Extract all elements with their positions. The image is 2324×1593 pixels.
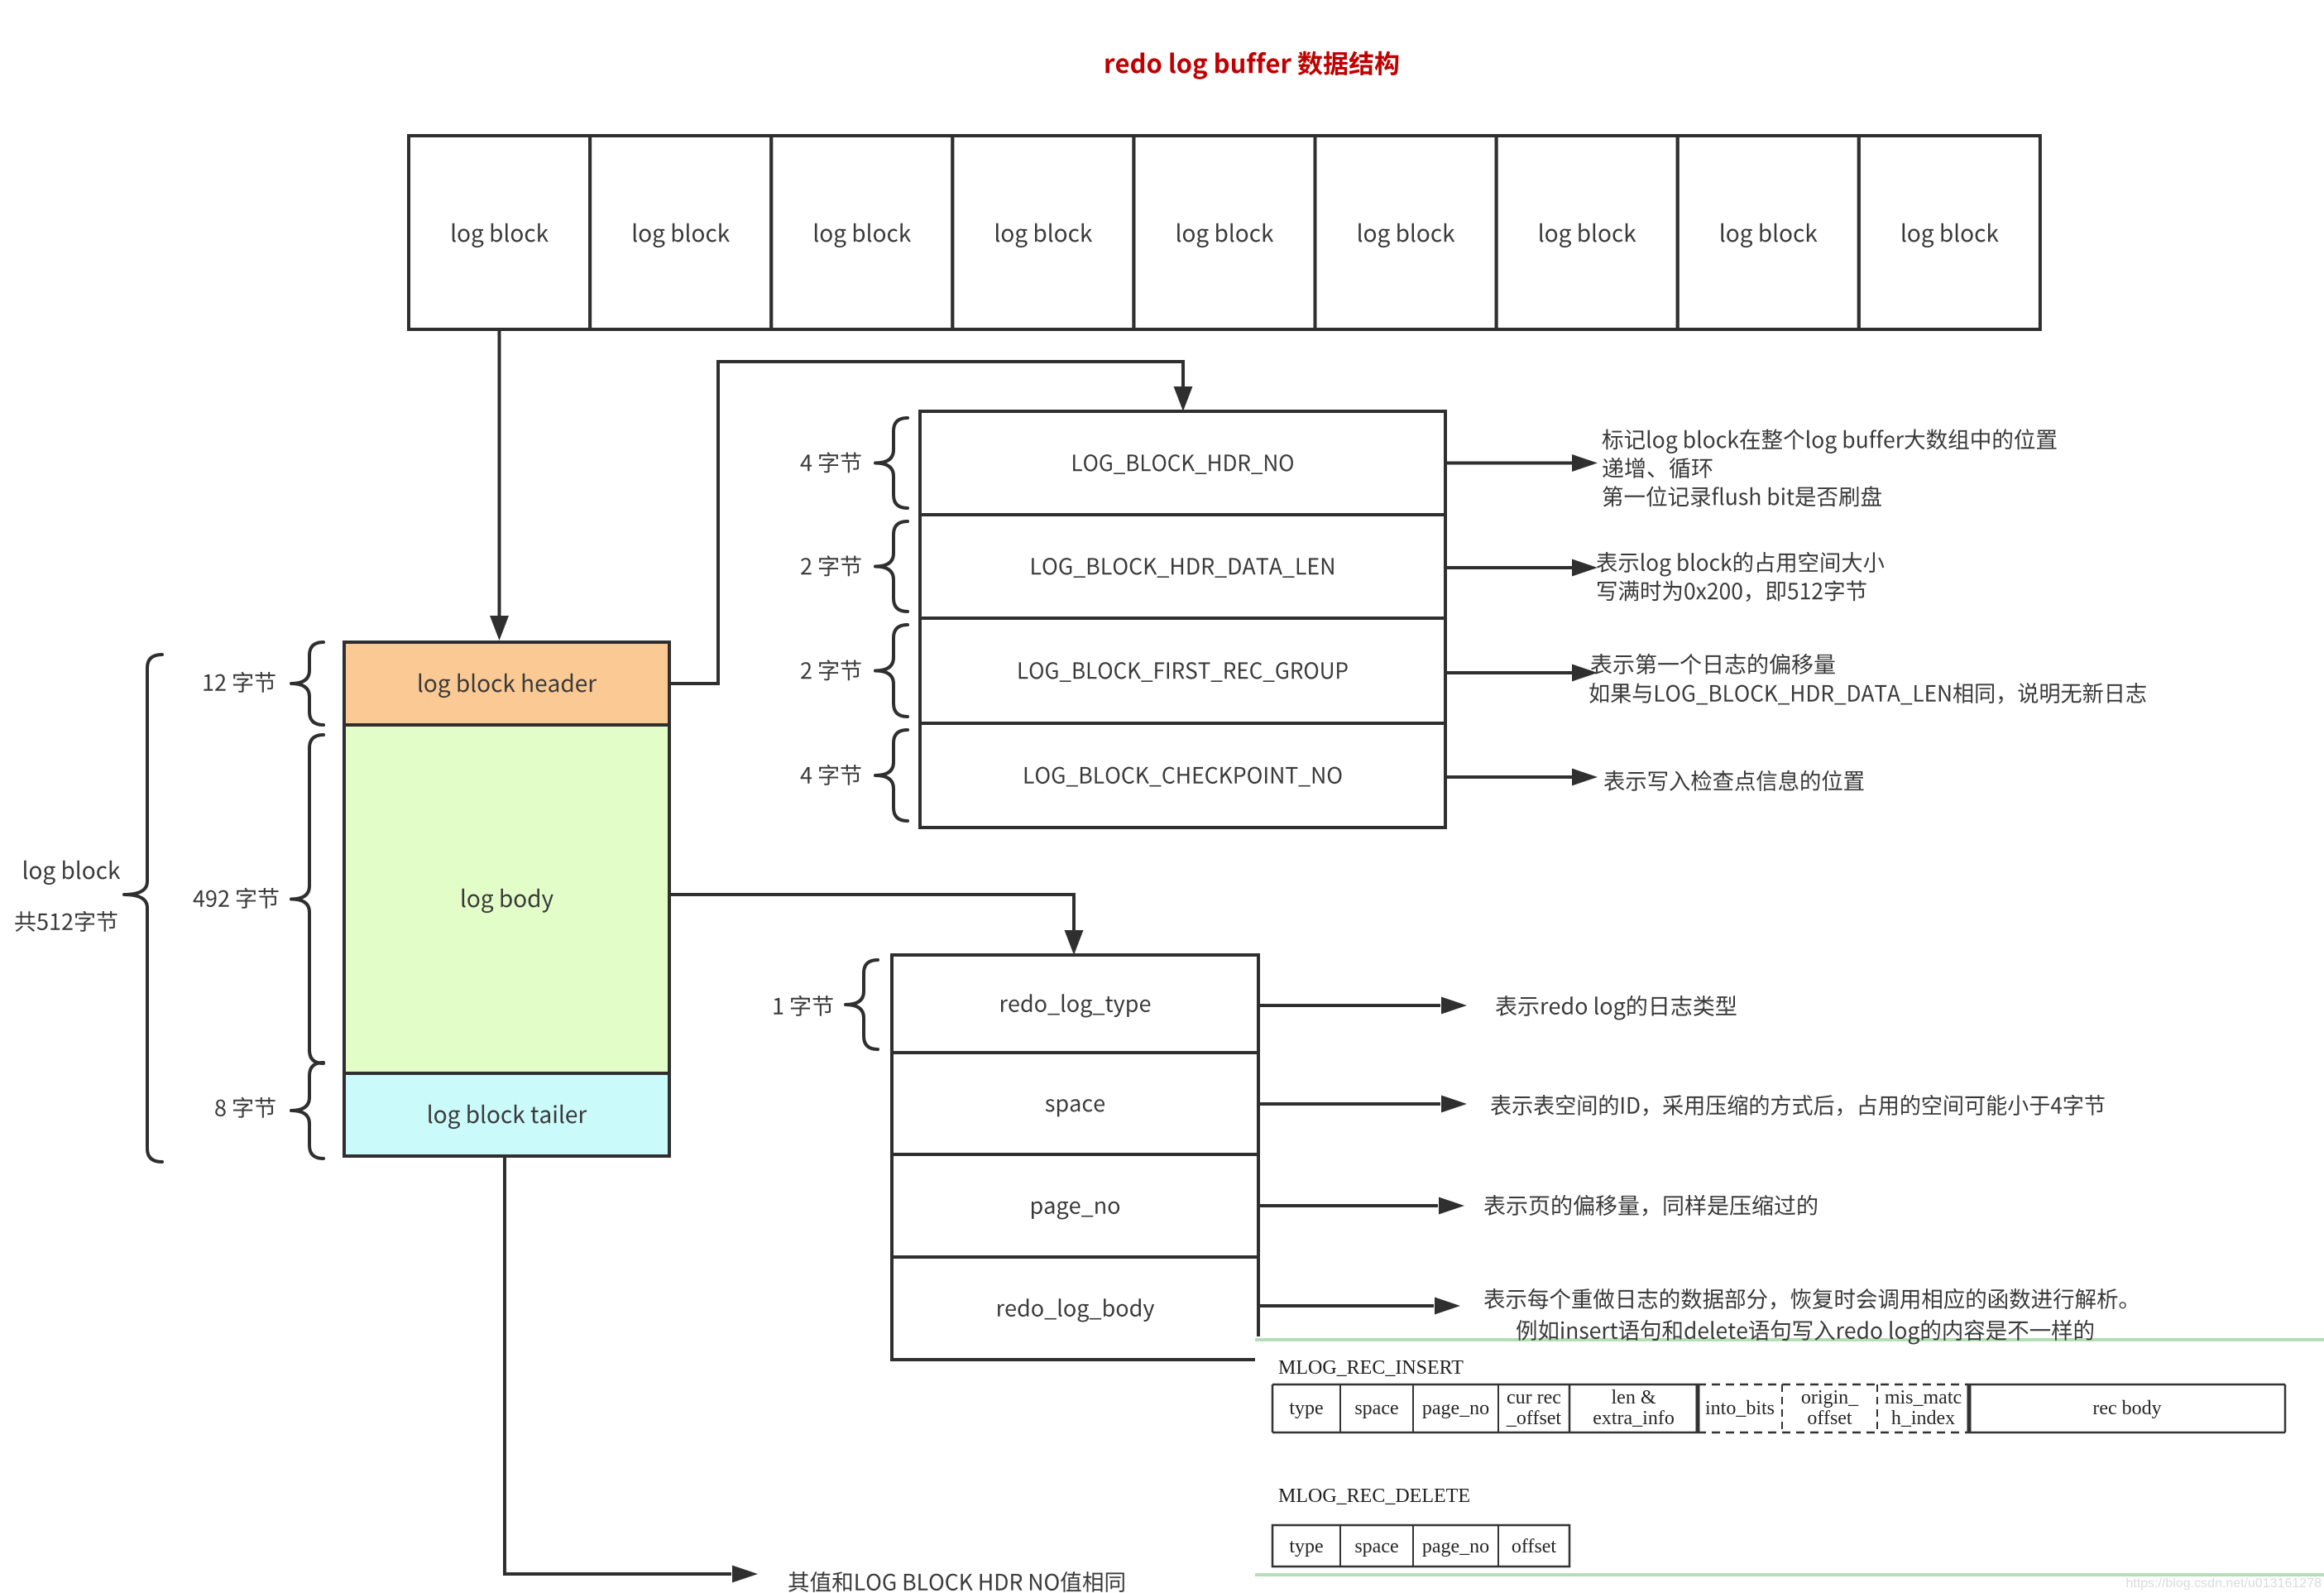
svg-text:mis_matc: mis_matc (1885, 1387, 1962, 1408)
svg-text:page_no: page_no (1422, 1536, 1489, 1557)
svg-text:origin_: origin_ (1801, 1387, 1859, 1408)
svg-text:MLOG_REC_INSERT: MLOG_REC_INSERT (1278, 1357, 1464, 1379)
svg-text:type: type (1289, 1536, 1323, 1557)
svg-text:_offset: _offset (1506, 1408, 1562, 1429)
svg-text:rec body: rec body (2092, 1398, 2161, 1419)
svg-text:len &: len & (1612, 1387, 1656, 1408)
svg-text:space: space (1354, 1398, 1398, 1419)
svg-text:h_index: h_index (1891, 1408, 1955, 1429)
svg-text:https://blog.csdn.net/u0131612: https://blog.csdn.net/u013161278 (2125, 1576, 2322, 1591)
svg-text:page_no: page_no (1422, 1398, 1489, 1419)
svg-text:space: space (1354, 1536, 1398, 1557)
svg-text:cur rec: cur rec (1507, 1387, 1561, 1408)
svg-text:offset: offset (1512, 1536, 1557, 1557)
svg-text:extra_info: extra_info (1593, 1408, 1675, 1429)
svg-text:offset: offset (1807, 1408, 1852, 1429)
svg-text:into_bits: into_bits (1705, 1398, 1775, 1419)
svg-text:type: type (1289, 1398, 1323, 1419)
svg-text:MLOG_REC_DELETE: MLOG_REC_DELETE (1278, 1485, 1470, 1507)
